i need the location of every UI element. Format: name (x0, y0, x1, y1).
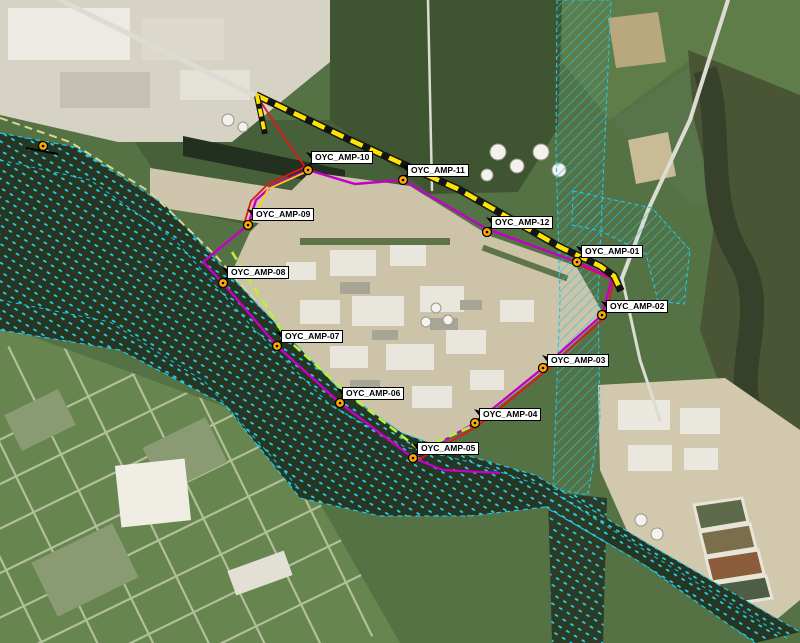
annotation-label-oyc-amp-08: OYC_AMP-08 (227, 266, 289, 279)
annotation-label-oyc-amp-04: OYC_AMP-04 (479, 408, 541, 421)
map-canvas: OYC_AMP-01 OYC_AMP-02 OYC_AMP-03 OYC_AMP… (0, 0, 800, 643)
annotation-label-oyc-amp-03: OYC_AMP-03 (547, 354, 609, 367)
annotation-label-oyc-amp-05: OYC_AMP-05 (417, 442, 479, 455)
satellite-base-layer (0, 0, 800, 643)
annotation-label-oyc-amp-01: OYC_AMP-01 (581, 245, 643, 258)
annotation-label-oyc-amp-06: OYC_AMP-06 (342, 387, 404, 400)
annotation-label-oyc-amp-07: OYC_AMP-07 (281, 330, 343, 343)
annotation-label-oyc-amp-12: OYC_AMP-12 (491, 216, 553, 229)
annotation-label-oyc-amp-11: OYC_AMP-11 (407, 164, 469, 177)
annotation-label-oyc-amp-09: OYC_AMP-09 (252, 208, 314, 221)
annotation-label-oyc-amp-10: OYC_AMP-10 (311, 151, 373, 164)
annotation-label-oyc-amp-02: OYC_AMP-02 (606, 300, 668, 313)
